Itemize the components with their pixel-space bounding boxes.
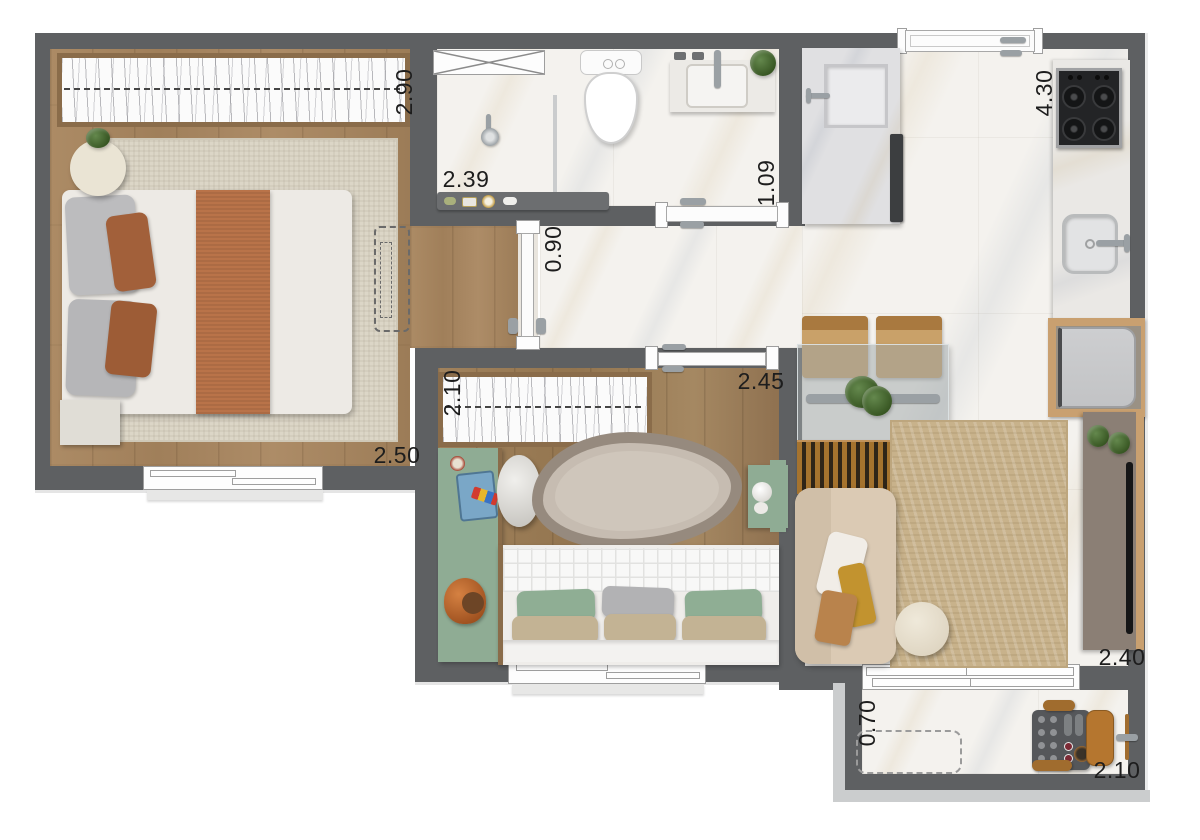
window-sill [147,490,323,500]
shower-glass [553,95,557,195]
dim-shower-width: 2.39 [426,166,506,192]
shower-head [481,128,499,146]
grill-knob [1050,742,1057,749]
pillow [104,300,157,378]
wardrobe-rail [445,406,641,408]
plant [1087,425,1109,447]
dim-master-width: 2.50 [357,442,437,468]
window-sash [516,664,608,671]
table-plant [862,386,892,416]
floor-plan: 2.90 2.39 1.09 0.90 2.50 2.10 2.45 4.30 … [0,0,1200,840]
dim-hall-door: 0.90 [540,209,566,289]
grill-knob [1038,716,1045,723]
door-handle [662,366,684,372]
plant [86,128,110,148]
soap-dish [674,52,686,60]
toiletry-item [482,195,495,208]
grill-knob [1038,729,1045,736]
lamp [752,482,772,502]
door-frame [645,346,658,370]
balcony-slab-edge [833,790,1150,802]
toiletry-item [462,197,477,207]
faucet [714,50,721,88]
door-frame [516,336,540,350]
wine-glass [1064,742,1073,751]
grill-knob [1050,729,1057,736]
drying-rack [890,134,903,222]
corridor-floor [410,226,520,348]
door-frame [766,346,779,370]
burner [1092,85,1116,109]
side-table [70,140,126,196]
pillow [604,614,676,642]
door-handle [662,344,686,350]
plant [1108,432,1130,454]
window-sash [606,672,700,679]
laundry-sink [824,64,888,128]
window-sash [150,470,236,477]
faucet [1124,234,1130,252]
shaft-window [433,50,545,75]
dim-kitchen-length: 4.30 [1031,53,1057,133]
door-handle [508,318,518,334]
grill-knob [1050,716,1057,723]
plant [750,50,776,76]
sliding-panel [966,667,1074,676]
shelf-bracket [770,524,786,532]
dim-living-width: 2.40 [1082,644,1162,670]
window-sash [232,478,316,485]
door-frame [516,220,540,234]
wall [779,33,802,226]
shelf-bracket [770,460,786,468]
grill-knob [1038,742,1045,749]
faucet [806,88,811,103]
burner [1062,85,1086,109]
hall-door [521,233,534,337]
hall-floor [540,226,805,348]
lamp [754,502,768,514]
cooktop-knob [1068,75,1073,80]
toiletry-item [503,197,517,205]
door-handle [1000,50,1022,56]
bottle [1064,714,1072,736]
cooktop-knob [1077,75,1082,80]
toy-ball [450,456,465,471]
dim-master-depth: 2.90 [391,52,417,132]
toiletry-item [444,197,456,205]
kids-door [658,352,766,366]
soap-dish [692,52,704,60]
door-handle [680,198,706,205]
bottle [1075,714,1083,736]
dim-kids-width: 2.45 [721,368,801,394]
washing-machine [1058,327,1136,408]
door-handle [1000,37,1026,43]
balcony-slab-edge [833,683,845,802]
bed-runner [196,190,270,414]
sliding-panel [872,678,972,687]
burner [1062,117,1086,141]
grill-paddle-handle [1116,734,1138,741]
tv [1126,462,1133,634]
dim-balcony-depth: 0.70 [854,683,880,763]
window-sill [512,684,704,694]
cooktop-knob [1104,75,1109,80]
dim-bath-entry: 1.09 [753,143,779,223]
coffee-table [895,602,949,656]
console-wood-edge [1136,412,1144,650]
burner [1092,117,1116,141]
teddy-bear-head [462,592,484,614]
sink-drain [1085,239,1095,249]
cooktop-knob [1095,75,1100,80]
wall [35,33,50,490]
sliding-panel [970,678,1074,687]
wardrobe-rail [64,88,400,90]
stool [1032,760,1072,771]
dim-balcony-width: 2.10 [1077,757,1157,783]
dim-kids-depth: 2.10 [439,353,465,433]
door-handle [536,318,546,334]
stool [1043,700,1075,711]
nightstand [60,400,120,445]
door-handle [680,221,704,228]
kids-headboard [503,548,779,592]
sliding-panel [866,667,968,676]
kids-duvet [503,640,779,662]
master-wardrobe [57,53,410,127]
wall [415,348,438,682]
ghost-dresser-outline [374,226,410,332]
